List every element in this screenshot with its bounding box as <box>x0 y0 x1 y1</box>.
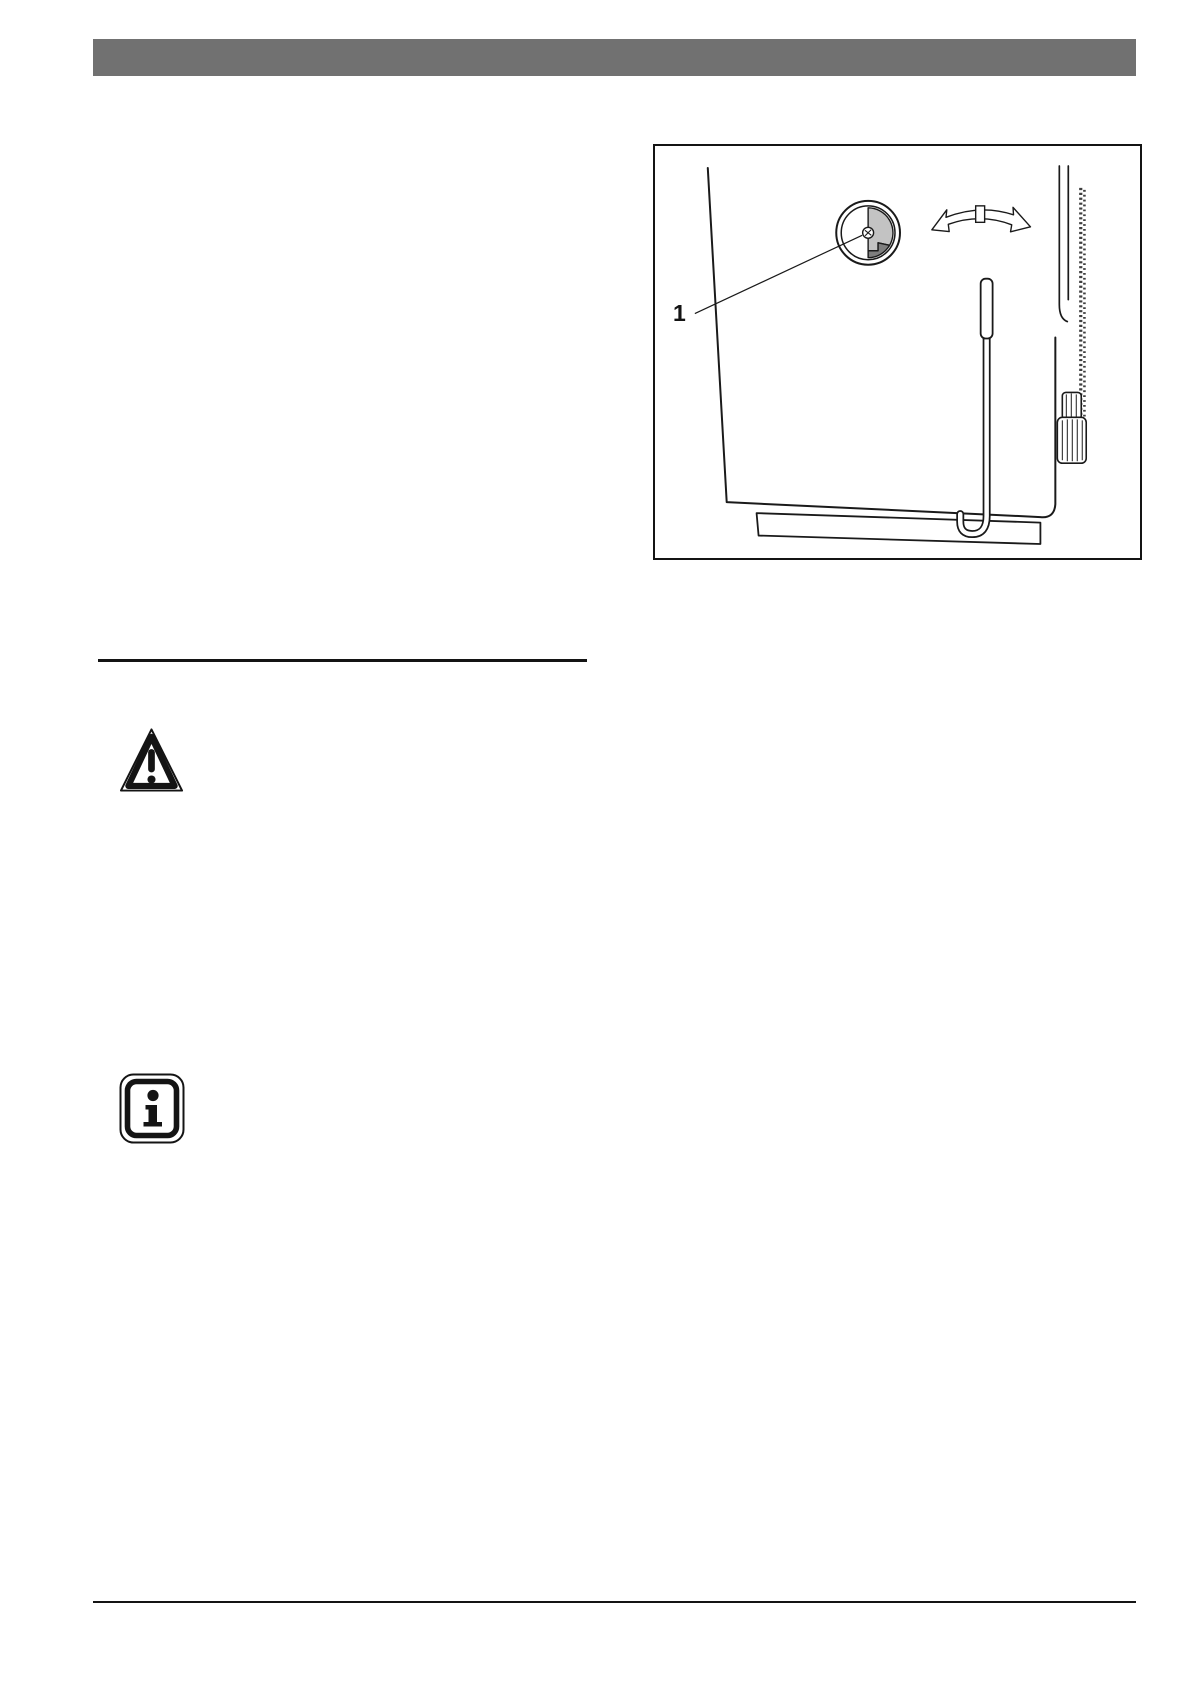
warning-triangle-icon <box>117 726 186 798</box>
info-glyph <box>119 1073 185 1145</box>
cleaning-lever <box>960 279 992 534</box>
info-icon <box>119 1073 185 1145</box>
rotary-dial <box>836 201 900 265</box>
base-plate <box>757 513 1041 544</box>
section-divider <box>98 659 587 662</box>
footer-rule <box>93 1601 1136 1603</box>
lever-handle <box>981 279 993 339</box>
boiler-illustration <box>655 146 1140 558</box>
header-bar <box>93 39 1136 76</box>
callout-leader-line <box>695 235 862 313</box>
figure-callout-1: 1 <box>673 302 686 325</box>
knurled-knob <box>1057 392 1086 463</box>
rotation-arrow-icon <box>932 206 1031 232</box>
warning-triangle-glyph <box>117 726 186 797</box>
document-page: 1 <box>0 0 1190 1684</box>
figure-panel: 1 <box>653 144 1142 560</box>
